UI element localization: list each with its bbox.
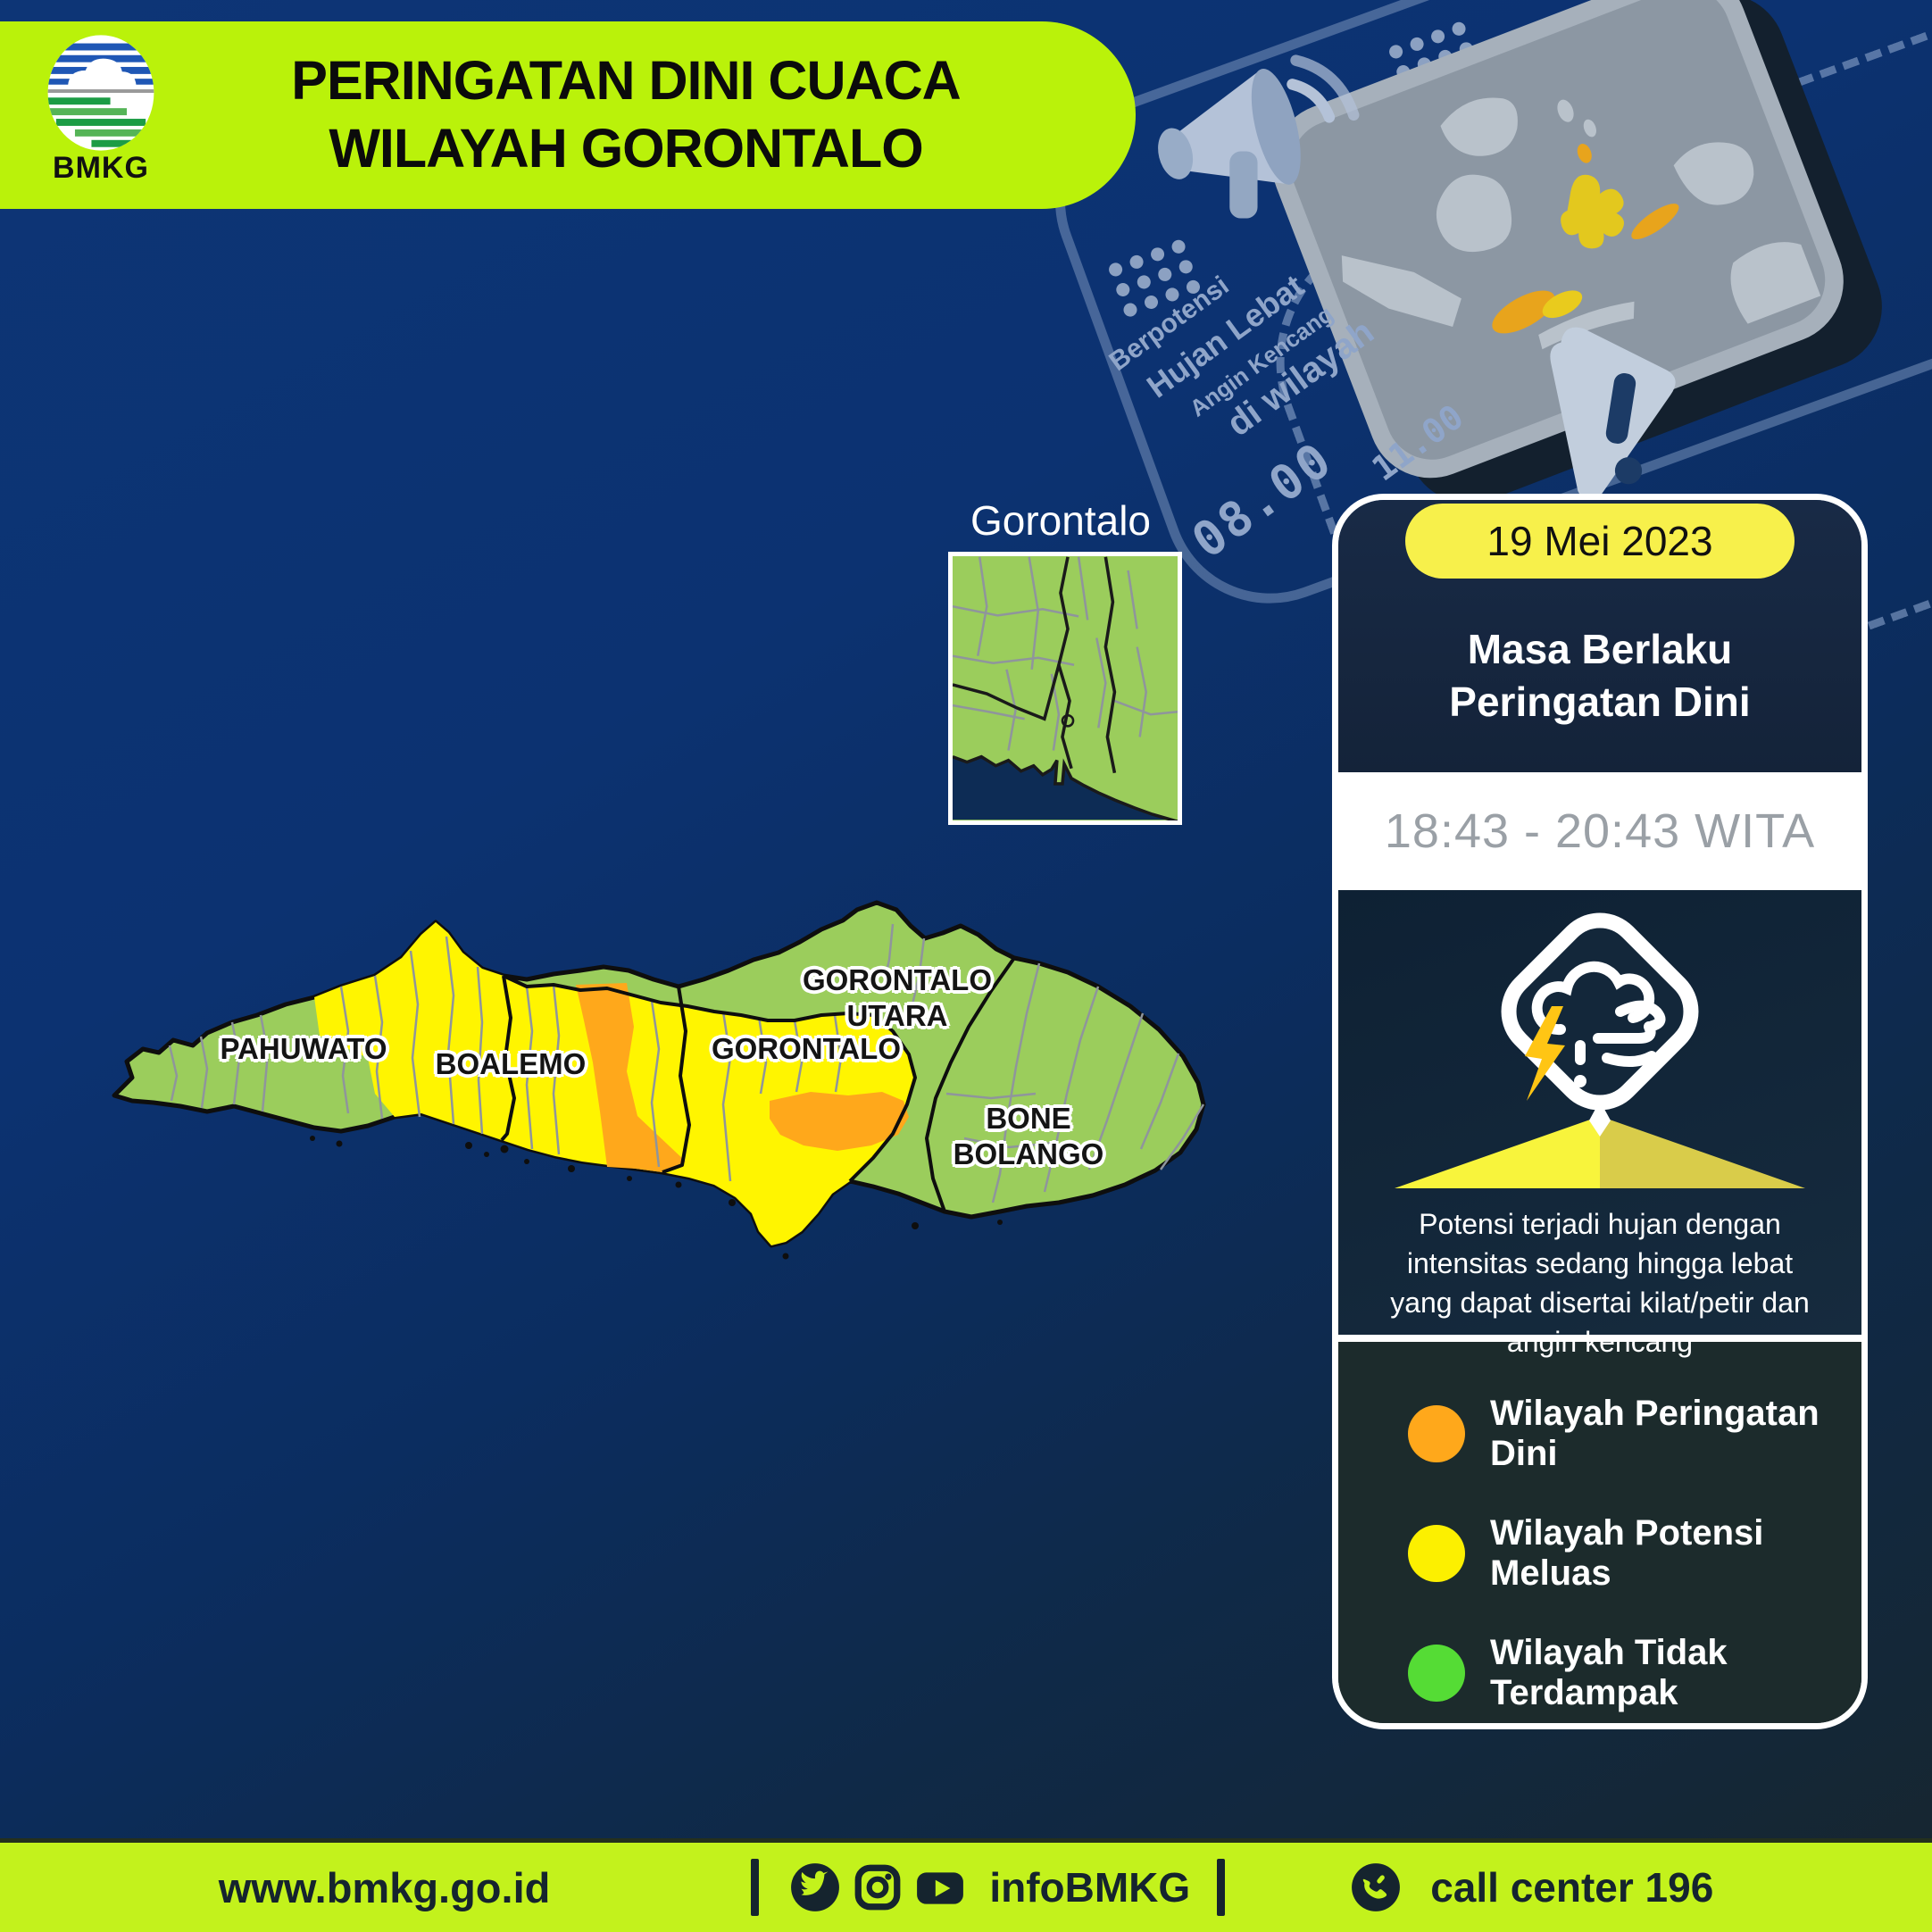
validity-title-line2: Peringatan Dini	[1338, 676, 1861, 729]
inset-map-title: Gorontalo	[945, 496, 1177, 545]
map-label-gorontalo-utara-line1: GORONTALO	[799, 962, 995, 998]
card-description-section: Potensi terjadi hujan dengan intensitas …	[1338, 890, 1861, 1335]
legend: Wilayah Peringatan Dini Wilayah Potensi …	[1338, 1335, 1861, 1729]
green-legend-dot	[1408, 1645, 1465, 1702]
validity-time-range: 18:43 - 20:43 WITA	[1338, 772, 1861, 890]
twitter-icon[interactable]	[789, 1861, 841, 1913]
legend-label: Wilayah Tidak Terdampak	[1490, 1633, 1861, 1713]
bmkg-logo: BMKG	[34, 34, 168, 196]
youtube-icon[interactable]	[914, 1861, 966, 1913]
clock-display-secondary: 11.00	[1365, 397, 1470, 489]
legend-label: Wilayah Peringatan Dini	[1490, 1394, 1861, 1474]
social-handle[interactable]: infoBMKG	[989, 1863, 1190, 1911]
map-label-bone-bolango: BONE BOLANGO	[908, 1101, 1149, 1171]
date-badge: 19 Mei 2023	[1405, 504, 1795, 579]
map-label-pahuwato: PAHUWATO	[205, 1031, 402, 1067]
legend-item-potential: Wilayah Potensi Meluas	[1408, 1513, 1861, 1594]
footer-separator	[1217, 1859, 1225, 1916]
phone-icon	[1350, 1861, 1402, 1913]
warning-info-card: 19 Mei 2023 Masa Berlaku Peringatan Dini…	[1332, 494, 1868, 1729]
legend-item-unaffected: Wilayah Tidak Terdampak	[1408, 1633, 1861, 1713]
card-header: 19 Mei 2023 Masa Berlaku Peringatan Dini	[1338, 500, 1861, 772]
yellow-legend-dot	[1408, 1525, 1465, 1582]
warning-description-line: yang dapat disertai kilat/petir dan	[1338, 1283, 1861, 1322]
title-banner: BMKG PERINGATAN DINI CUACA WILAYAH GORON…	[0, 21, 1136, 209]
map-label-gorontalo: GORONTALO	[708, 1031, 904, 1067]
clock-display: 08.00	[1182, 430, 1344, 569]
page-title-line2: WILAYAH GORONTALO	[187, 115, 1064, 183]
warning-description-line: intensitas sedang hingga lebat	[1338, 1244, 1861, 1283]
page-title: PERINGATAN DINI CUACA WILAYAH GORONTALO	[187, 21, 1064, 209]
warning-description-line: angin kencang	[1338, 1322, 1861, 1362]
website-link[interactable]: www.bmkg.go.id	[219, 1863, 551, 1912]
map-label-gorontalo-utara: GORONTALO UTARA	[799, 962, 995, 1033]
logo-label: BMKG	[34, 151, 168, 186]
storm-warning-icon	[1386, 906, 1814, 1210]
warning-description: Potensi terjadi hujan dengan intensitas …	[1338, 1204, 1861, 1362]
infographic-page: Berpotensi Hujan Lebat Angin Kencang di …	[0, 0, 1932, 1932]
validity-title: Masa Berlaku Peringatan Dini	[1338, 623, 1861, 729]
inset-map	[948, 552, 1182, 825]
gorontalo-province-map	[107, 870, 1223, 1263]
footer-bar: www.bmkg.go.id infoBMKG call center 196	[0, 1838, 1932, 1932]
inset-map-graphic	[953, 556, 1178, 820]
instagram-icon[interactable]	[852, 1861, 904, 1913]
map-label-boalemo: BOALEMO	[412, 1046, 609, 1082]
legend-item-warning: Wilayah Peringatan Dini	[1408, 1394, 1861, 1474]
page-title-line1: PERINGATAN DINI CUACA	[187, 47, 1064, 115]
orange-legend-dot	[1408, 1405, 1465, 1462]
footer-separator	[751, 1859, 759, 1916]
legend-label: Wilayah Potensi Meluas	[1490, 1513, 1861, 1594]
warning-description-line: Potensi terjadi hujan dengan	[1338, 1204, 1861, 1244]
map-label-gorontalo-utara-line2: UTARA	[799, 998, 995, 1034]
call-center-label: call center 196	[1430, 1863, 1713, 1911]
bmkg-logo-icon	[42, 34, 160, 152]
validity-title-line1: Masa Berlaku	[1338, 623, 1861, 676]
